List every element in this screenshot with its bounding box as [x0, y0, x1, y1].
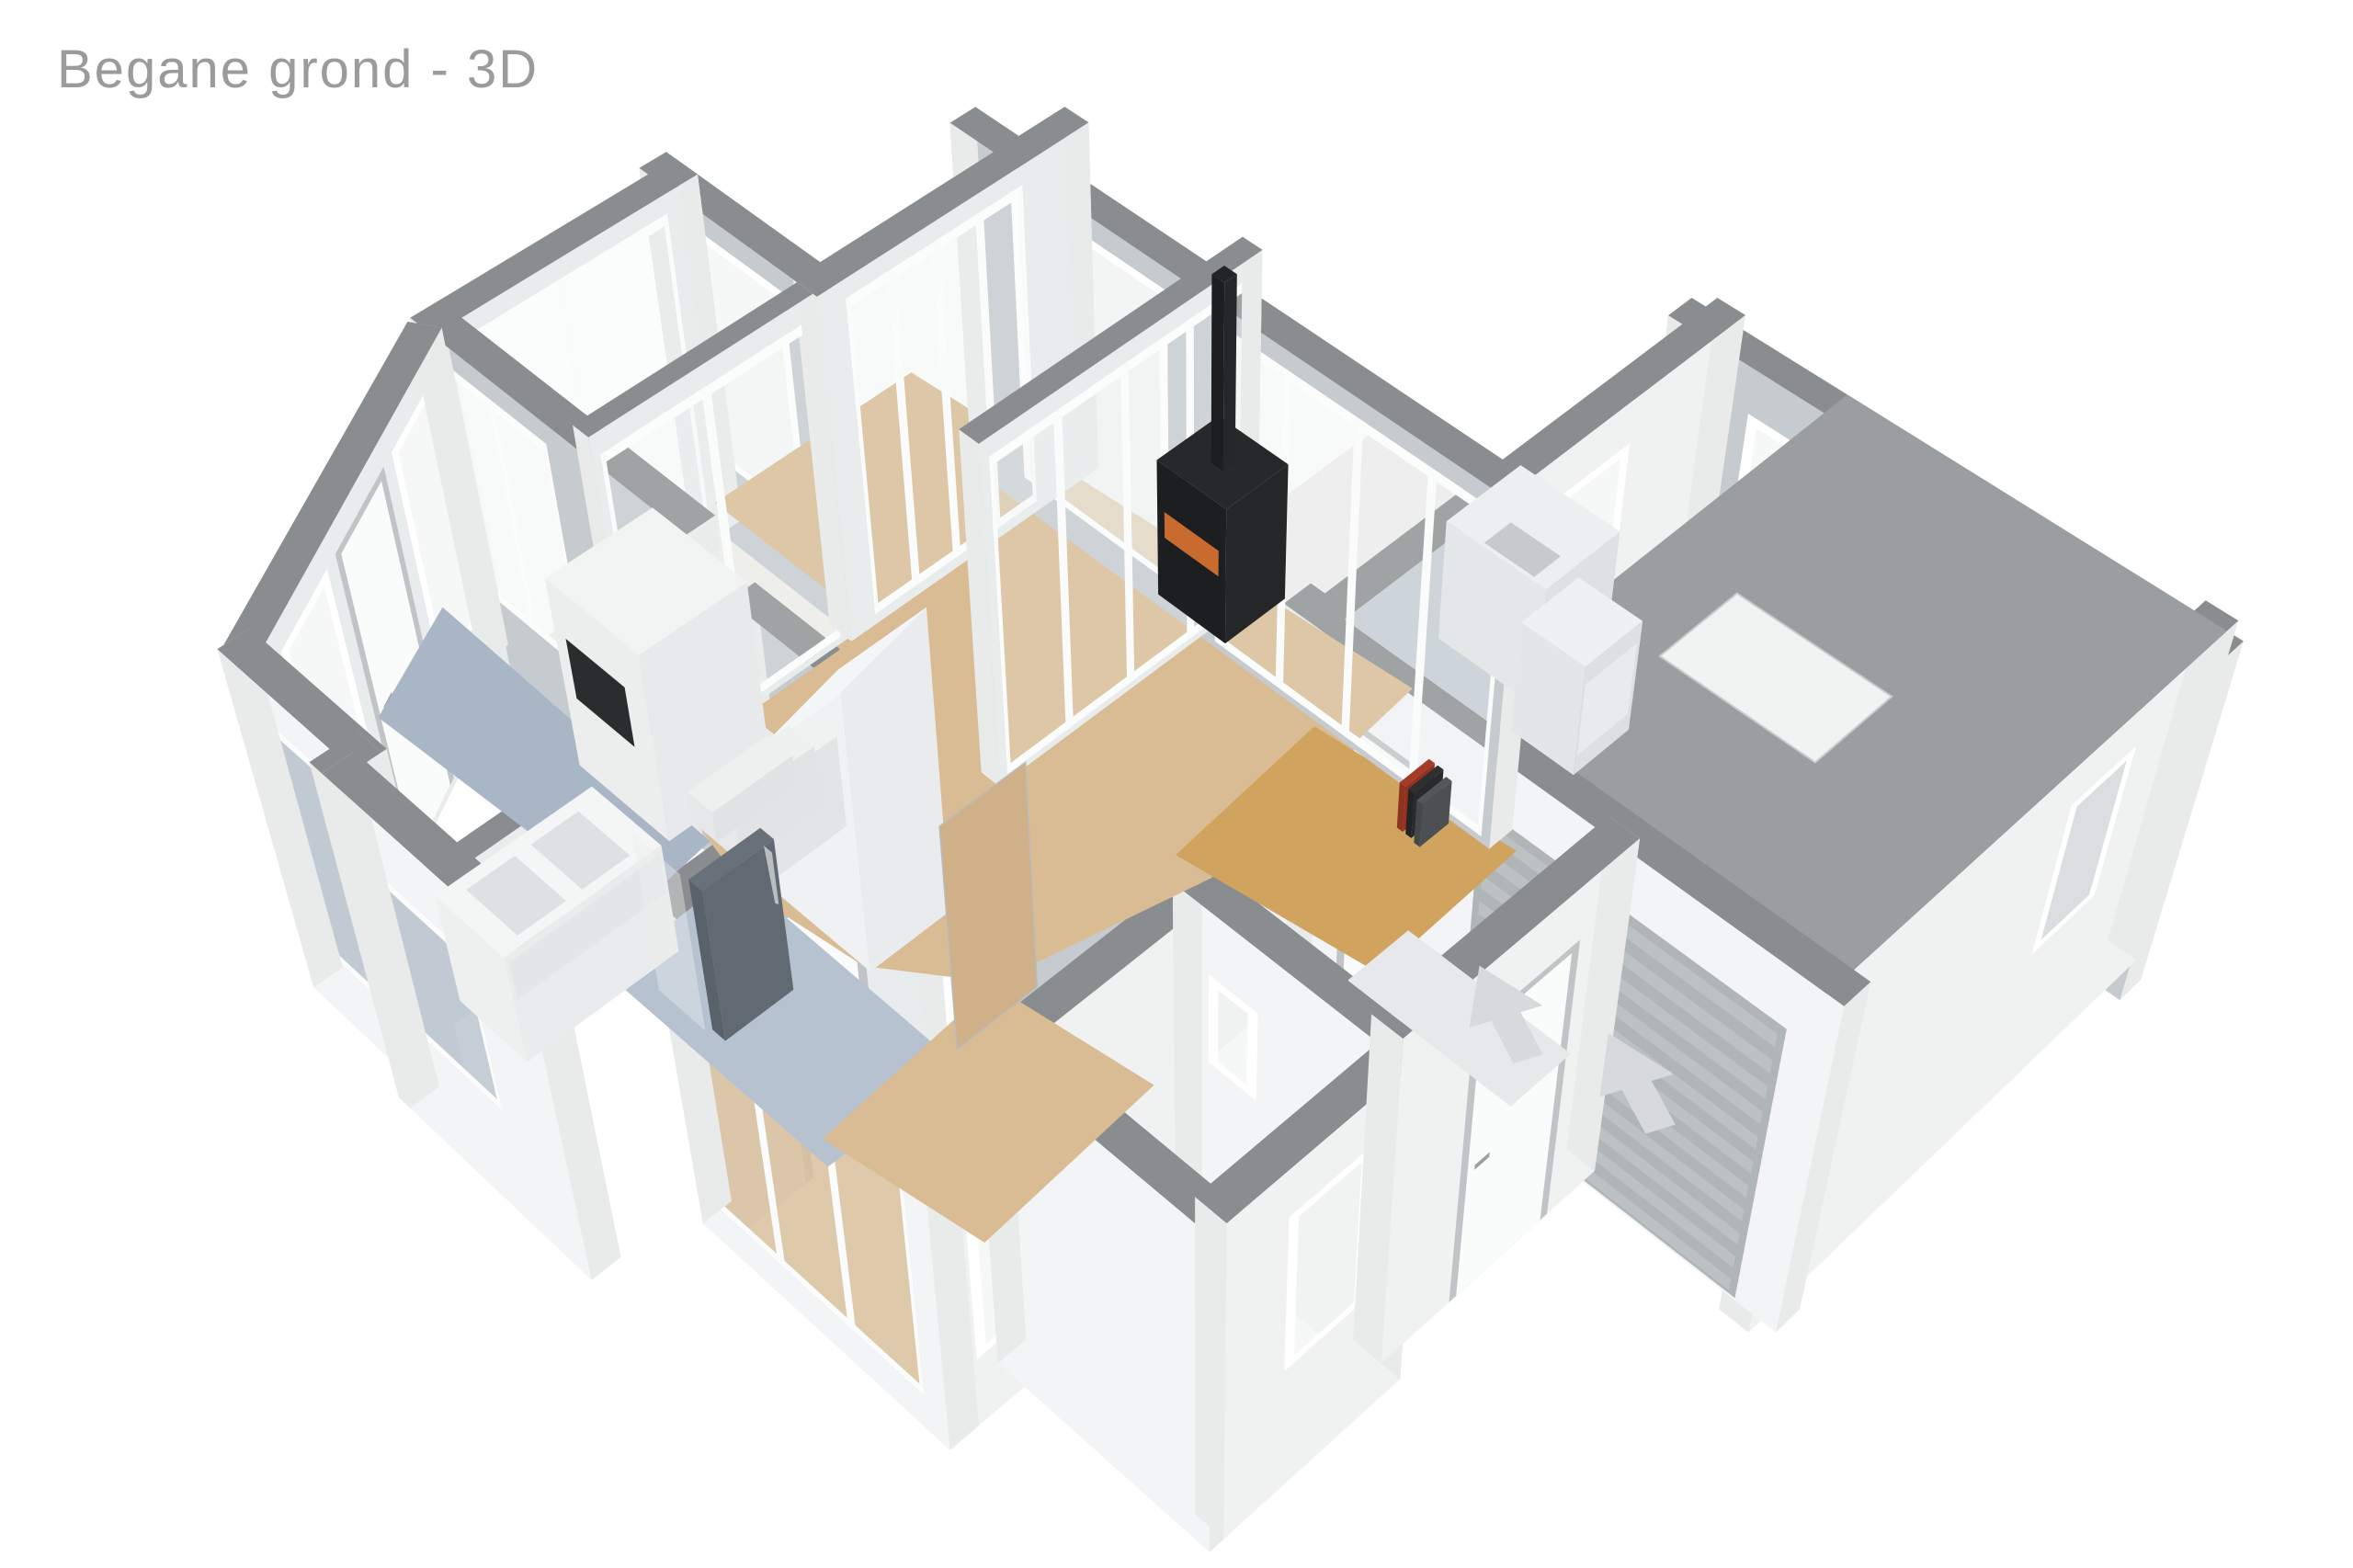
svg-text:Begane grond - 3D: Begane grond - 3D [57, 40, 539, 99]
